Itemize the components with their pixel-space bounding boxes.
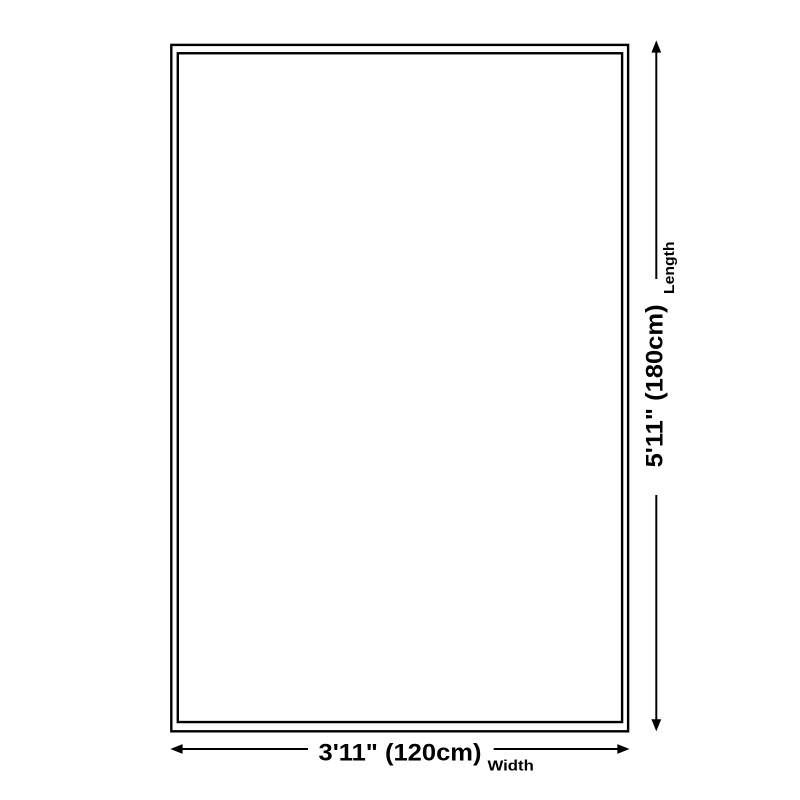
svg-text:3'11" (120cm): 3'11" (120cm): [319, 740, 482, 767]
svg-text:Width: Width: [488, 758, 534, 774]
svg-text:Length: Length: [662, 242, 678, 295]
svg-text:5'11" (180cm): 5'11" (180cm): [641, 304, 668, 467]
